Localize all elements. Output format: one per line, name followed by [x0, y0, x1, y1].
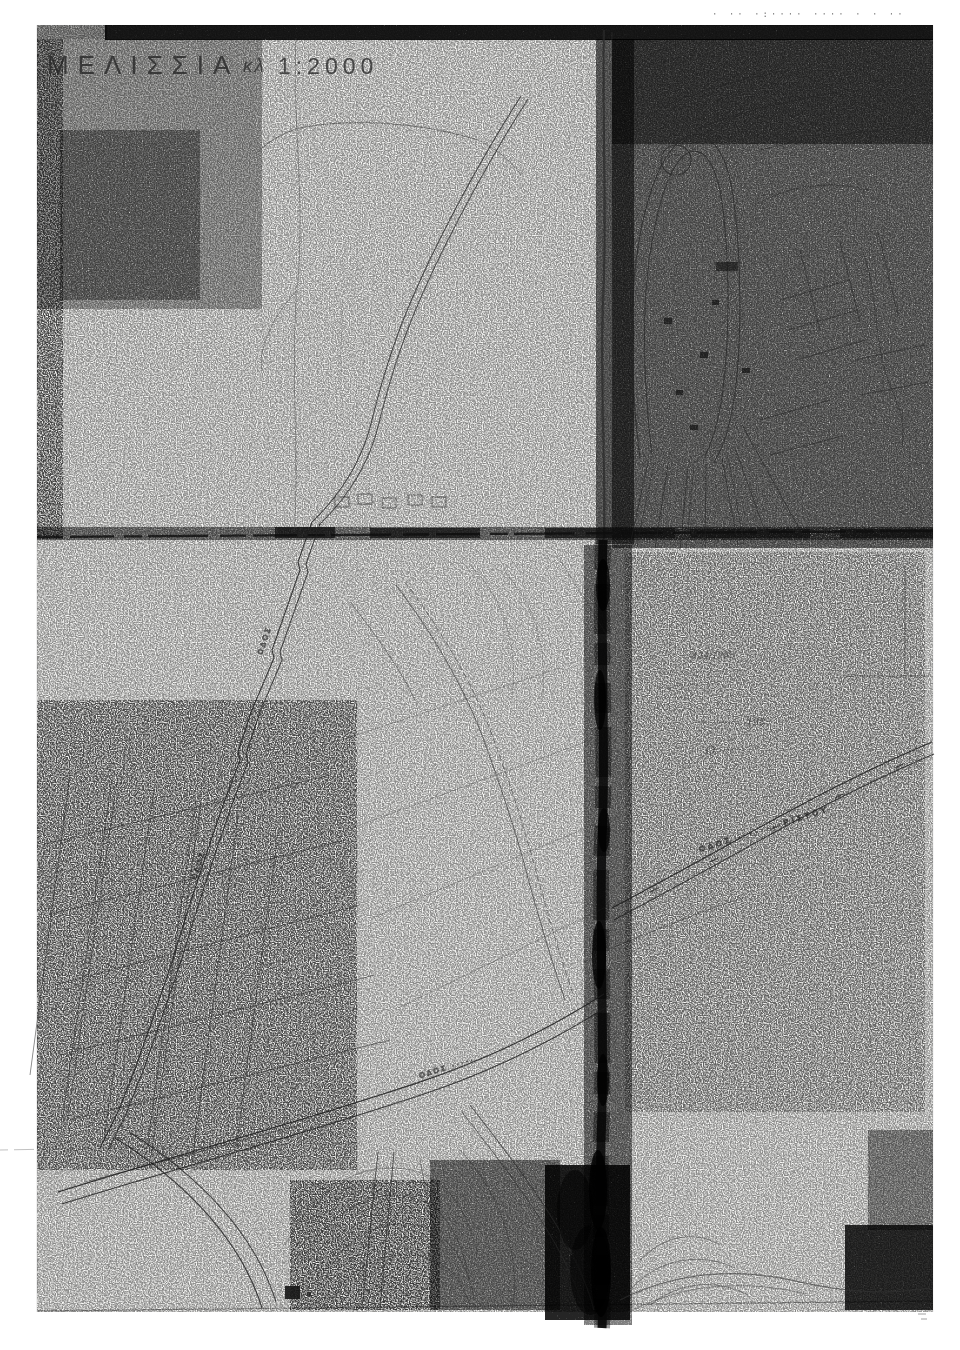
building-mark: [700, 352, 708, 358]
note-date-line: ·· ·········· 198·: [702, 717, 769, 730]
left-edge-grain: [37, 39, 63, 539]
top-edge-marks: · ·· ·:···· ···· · · ··: [712, 10, 906, 20]
top-left-dark-patch: [60, 130, 200, 300]
fold-blotch: [594, 670, 606, 730]
note-line-4: ······ ········/: [651, 693, 693, 703]
top-band-left-fade: [37, 25, 107, 39]
small-dot: [307, 1292, 311, 1296]
fold-clump: [690, 529, 810, 538]
fold-blotch: [596, 559, 610, 611]
note-signature: Ο ·······: [705, 742, 746, 757]
building-mark: [664, 318, 672, 324]
building-mark: [690, 425, 698, 430]
upper-right-top-strip: [612, 39, 933, 144]
bottom-center-texture: [430, 1160, 560, 1310]
scanned-map-page: ΟΔΟΣ ΟΔΟΣ ΟΔΟΣ ·····: [0, 0, 960, 1350]
bottom-right-tick-marks: [918, 1314, 927, 1319]
dark-streak: [570, 1225, 610, 1315]
fold-blotch: [597, 1054, 609, 1106]
scan-noise: [37, 25, 933, 1325]
bottom-right-dark-blotch: [845, 1225, 933, 1310]
building-mark: [742, 368, 750, 373]
map-title: ΜΕΛΙΣΣΙΑ: [47, 50, 239, 80]
top-dark-band-tint: [105, 26, 933, 39]
lower-left-grain: [37, 700, 357, 1170]
fold-clump: [545, 528, 675, 538]
scale-label: κλ: [243, 56, 266, 77]
building-mark: [676, 390, 683, 395]
building-mark: [712, 300, 719, 305]
fold-blotch: [592, 921, 606, 989]
fold-clump: [275, 527, 335, 538]
fold-clump: [370, 528, 480, 538]
bottom-right-grey-wash: [868, 1130, 933, 1230]
dark-label-smudge: [716, 262, 738, 271]
fold-clump: [840, 529, 933, 538]
note-line-1: · 434/1983: [686, 651, 735, 662]
fold-shadow-upper: [596, 39, 634, 544]
note-line-3: ··· ··· ··········· ······: [653, 680, 719, 691]
melissia-map-scan: ΟΔΟΣ ΟΔΟΣ ΟΔΟΣ ·····: [0, 0, 960, 1350]
fold-blotch: [598, 808, 610, 852]
scale-value: 1:2000: [278, 53, 378, 79]
small-black-square: [285, 1286, 300, 1299]
